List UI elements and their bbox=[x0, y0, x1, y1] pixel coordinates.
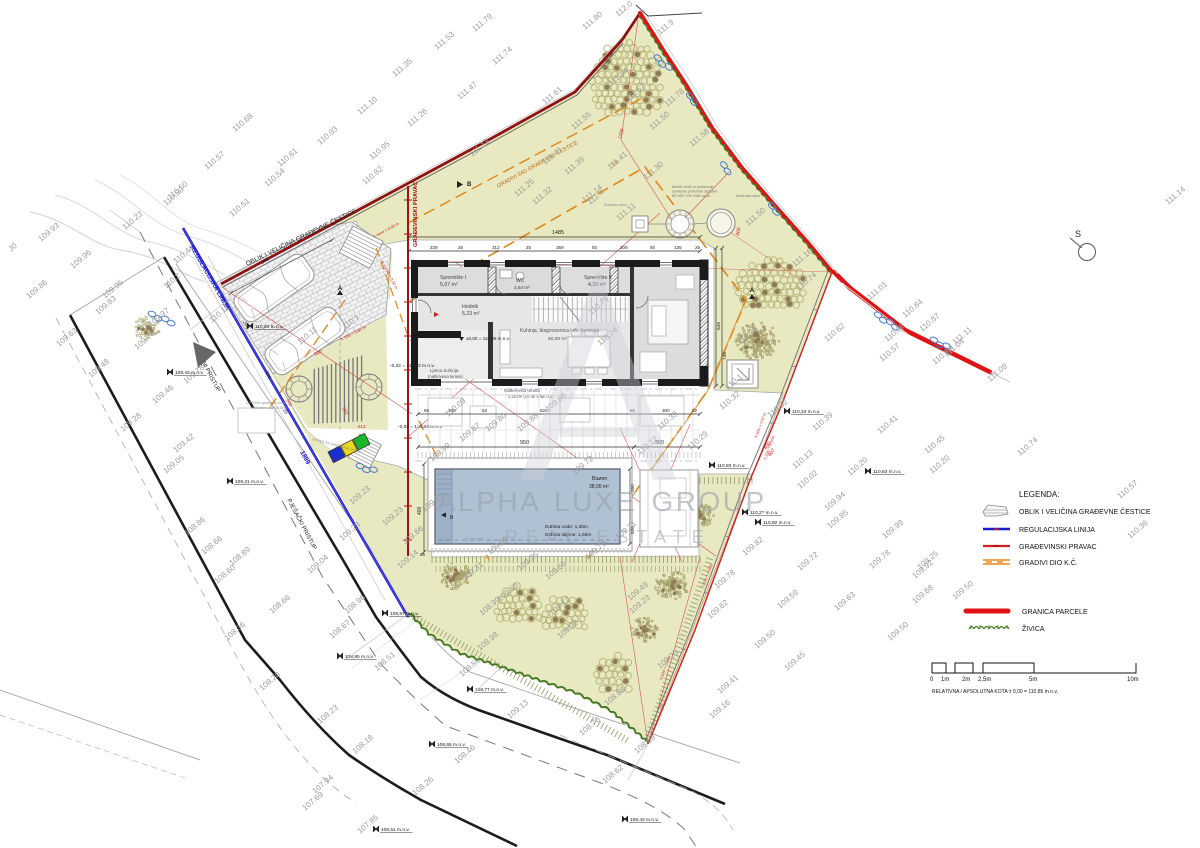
svg-text:Drenažno okno: Drenažno okno bbox=[604, 203, 627, 207]
svg-text:110,33 m.n.v.: 110,33 m.n.v. bbox=[792, 409, 820, 415]
svg-text:1485: 1485 bbox=[552, 230, 564, 236]
svg-text:110,83 m.n.v.: 110,83 m.n.v. bbox=[717, 463, 745, 469]
svg-text:950: 950 bbox=[520, 440, 529, 446]
svg-text:3,64 m²: 3,64 m² bbox=[514, 285, 530, 290]
svg-text:50,08 m²: 50,08 m² bbox=[548, 336, 567, 342]
svg-text:GRAĐEVINSKI PRAVAC: GRAĐEVINSKI PRAVAC bbox=[1019, 544, 1097, 551]
svg-text:GRANICA PARCELE: GRANICA PARCELE bbox=[1022, 609, 1088, 616]
svg-text:2m: 2m bbox=[962, 677, 970, 683]
svg-text:Spremište I: Spremište I bbox=[440, 275, 466, 281]
svg-text:312: 312 bbox=[492, 245, 500, 250]
svg-text:52: 52 bbox=[482, 408, 488, 413]
svg-text:5,23 m²: 5,23 m² bbox=[462, 311, 480, 317]
svg-text:2,5m: 2,5m bbox=[978, 677, 991, 683]
svg-text:10m: 10m bbox=[1127, 677, 1139, 683]
svg-text:(natkrivena terasa): (natkrivena terasa) bbox=[428, 374, 464, 379]
svg-text:Volumen cca 10,000 l: Volumen cca 10,000 l bbox=[252, 406, 288, 410]
svg-text:65: 65 bbox=[424, 408, 430, 413]
svg-text:110,64 m.n.v.: 110,64 m.n.v. bbox=[255, 324, 283, 330]
svg-text:50: 50 bbox=[650, 245, 656, 250]
svg-text:135: 135 bbox=[674, 245, 682, 250]
svg-text:REGULACIJSKA LINIJA: REGULACIJSKA LINIJA bbox=[1019, 527, 1095, 534]
svg-text:109,21 m.n.v.: 109,21 m.n.v. bbox=[235, 479, 264, 485]
svg-text:GRADIVI DIO K.Č.: GRADIVI DIO K.Č. bbox=[1019, 558, 1078, 567]
svg-text:LEGENDA:: LEGENDA: bbox=[1019, 490, 1059, 499]
svg-text:5m: 5m bbox=[1029, 677, 1037, 683]
svg-text:108,51 m.n.v.: 108,51 m.n.v. bbox=[381, 827, 410, 833]
svg-text:5,07 m²: 5,07 m² bbox=[440, 282, 458, 288]
svg-text:359: 359 bbox=[556, 245, 564, 250]
svg-text:-0,32 = 110,53 m.n.v.: -0,32 = 110,53 m.n.v. bbox=[390, 363, 435, 369]
svg-text:52: 52 bbox=[692, 408, 698, 413]
svg-text:25: 25 bbox=[695, 245, 701, 250]
svg-text:BP ASP 10K OAB za tlo: BP ASP 10K OAB za tlo bbox=[672, 194, 710, 198]
svg-text:25: 25 bbox=[458, 245, 464, 250]
svg-text:Hodnik: Hodnik bbox=[462, 304, 479, 310]
svg-text:Kontrolno okno: Kontrolno okno bbox=[736, 194, 760, 198]
svg-text:Bazen: Bazen bbox=[592, 476, 607, 482]
svg-text:ALPHA LUXE GROUP: ALPHA LUXE GROUP bbox=[437, 486, 767, 517]
svg-text:108,43 m.n.v.: 108,43 m.n.v. bbox=[630, 817, 659, 823]
svg-text:110,82 m.n.v.: 110,82 m.n.v. bbox=[763, 520, 791, 526]
svg-text:513: 513 bbox=[358, 424, 366, 429]
svg-text:ŽIVICA: ŽIVICA bbox=[1022, 624, 1045, 633]
svg-text:736: 736 bbox=[722, 352, 728, 360]
svg-text:110,83 m.n.v.: 110,83 m.n.v. bbox=[873, 469, 901, 475]
svg-text:209: 209 bbox=[620, 245, 628, 250]
svg-text:545: 545 bbox=[716, 322, 722, 330]
svg-text:±0,00 = 110,85 m.n.v.: ±0,00 = 110,85 m.n.v. bbox=[466, 336, 510, 341]
svg-text:1m: 1m bbox=[941, 677, 949, 683]
svg-text:S: S bbox=[1075, 229, 1081, 239]
svg-text:108,97 m.n.v.: 108,97 m.n.v. bbox=[390, 611, 419, 617]
svg-text:A: A bbox=[750, 288, 755, 294]
svg-text:sanitarno potrošnih otpadnih: sanitarno potrošnih otpadnih bbox=[672, 190, 717, 194]
svg-text:Boletić većih je profiliranje: Boletić većih je profiliranje bbox=[672, 185, 714, 189]
svg-text:B: B bbox=[467, 182, 472, 188]
svg-text:108,65 m.n.v.: 108,65 m.n.v. bbox=[437, 742, 466, 748]
svg-text:25: 25 bbox=[526, 245, 532, 250]
svg-text:OBLIK I VELIČINA GRAĐEVNE ČEST: OBLIK I VELIČINA GRAĐEVNE ČESTICE bbox=[1019, 507, 1151, 516]
svg-text:RELATIVNA / APSOLUTNA KOTA ±: RELATIVNA / APSOLUTNA KOTA ± 0,00 = 110,… bbox=[932, 689, 1058, 695]
svg-text:50: 50 bbox=[592, 245, 598, 250]
svg-text:— REAL ESTATE: — REAL ESTATE bbox=[466, 527, 712, 547]
svg-text:239: 239 bbox=[430, 245, 438, 250]
svg-text:WC: WC bbox=[516, 278, 525, 284]
svg-text:65: 65 bbox=[420, 552, 425, 557]
svg-text:UPOJNI spremnik vode: UPOJNI spremnik vode bbox=[246, 401, 286, 405]
